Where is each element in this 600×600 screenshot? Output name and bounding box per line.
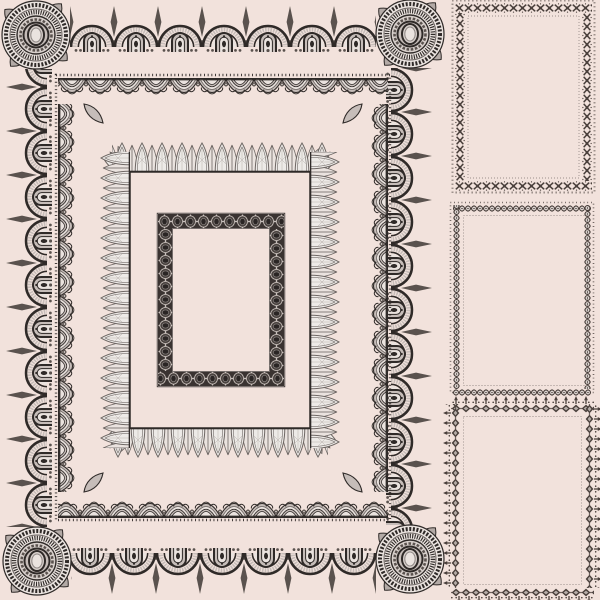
medallion-top-right (374, 0, 446, 70)
medallion-top-left (0, 0, 72, 71)
frames-artwork-svg (0, 0, 600, 600)
medallion-bottom-right (374, 523, 446, 595)
medallion-bottom-left (1, 525, 73, 597)
ornamental-frames-collection (0, 0, 600, 600)
